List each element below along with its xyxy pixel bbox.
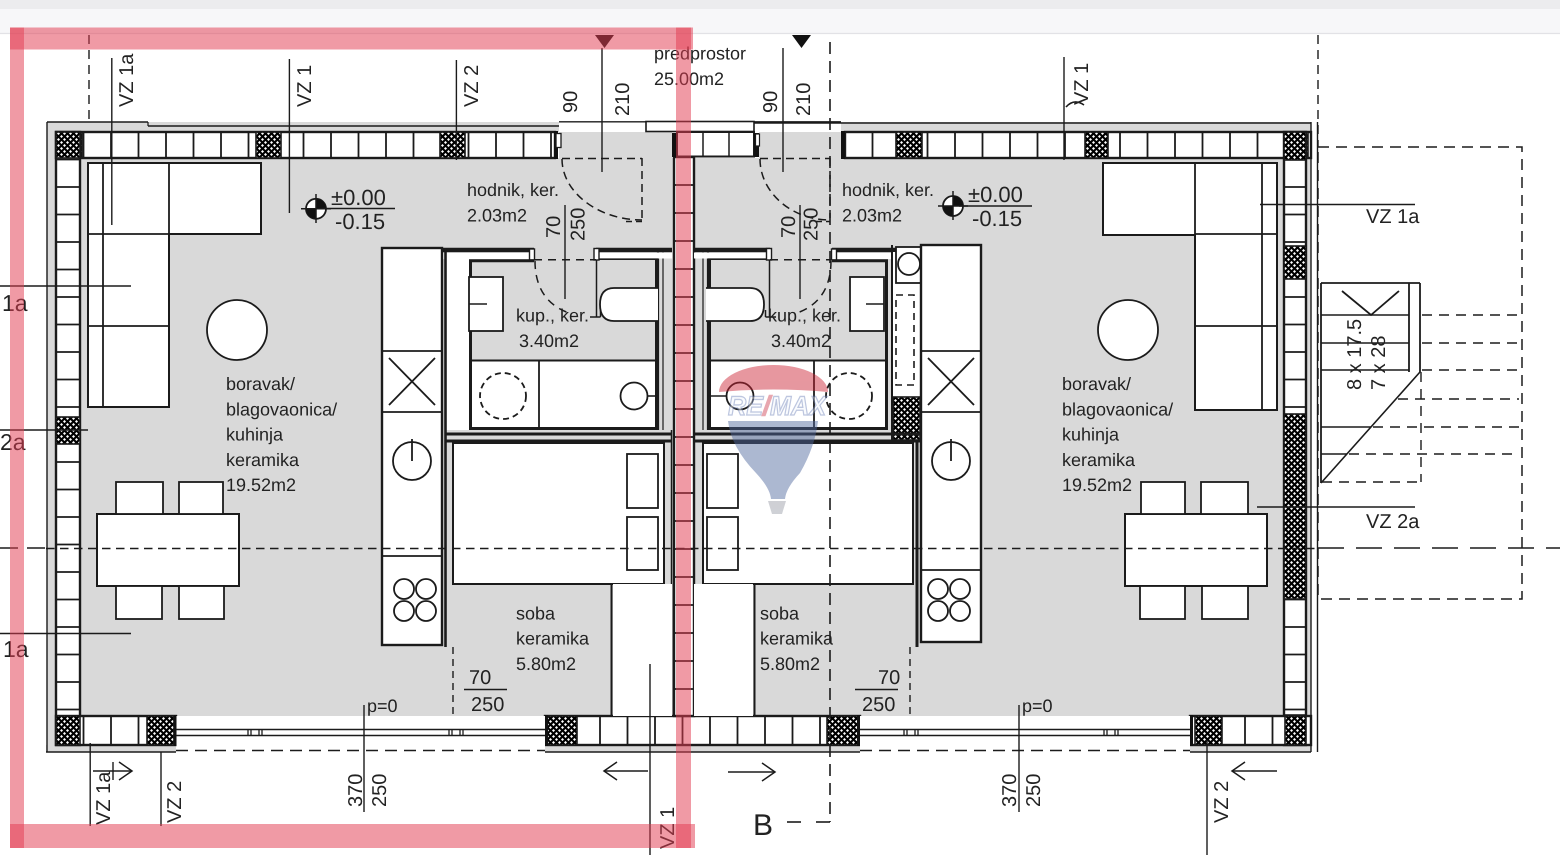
svg-text:-0.15: -0.15	[335, 209, 385, 234]
svg-text:2.03m2: 2.03m2	[842, 205, 902, 225]
svg-text:±0.00: ±0.00	[331, 185, 386, 210]
svg-text:370: 370	[999, 774, 1021, 807]
svg-text:250: 250	[801, 208, 823, 241]
svg-text:kuhinja: kuhinja	[1062, 425, 1120, 445]
svg-text:210: 210	[793, 83, 815, 116]
svg-text:keramika: keramika	[516, 629, 590, 649]
svg-text:VZ 1a: VZ 1a	[93, 771, 115, 825]
svg-text:VZ 1: VZ 1	[294, 65, 316, 107]
svg-text:VZ 2: VZ 2	[461, 65, 483, 107]
svg-text:kup., ker.: kup., ker.	[516, 306, 589, 326]
svg-text:70: 70	[543, 216, 565, 238]
svg-text:boravak/: boravak/	[226, 374, 295, 394]
svg-text:RE/MAX: RE/MAX	[728, 391, 828, 421]
svg-text:250: 250	[471, 694, 504, 716]
svg-text:keramika: keramika	[760, 629, 834, 649]
svg-text:±0.00: ±0.00	[968, 182, 1023, 207]
svg-text:hodnik, ker.: hodnik, ker.	[467, 180, 559, 200]
svg-text:blagovaonica/: blagovaonica/	[226, 399, 337, 419]
svg-text:250: 250	[568, 208, 590, 241]
svg-text:70: 70	[778, 216, 800, 238]
svg-text:VZ 1a: VZ 1a	[116, 53, 138, 107]
svg-text:soba: soba	[760, 604, 800, 624]
svg-text:19.52m2: 19.52m2	[226, 475, 296, 495]
svg-text:2.03m2: 2.03m2	[467, 205, 527, 225]
svg-text:kuhinja: kuhinja	[226, 425, 284, 445]
svg-text:p=0: p=0	[1022, 696, 1053, 716]
svg-text:70: 70	[469, 667, 491, 689]
svg-text:5.80m2: 5.80m2	[760, 654, 820, 674]
svg-text:-0.15: -0.15	[972, 206, 1022, 231]
svg-text:p=0: p=0	[367, 696, 398, 716]
svg-text:19.52m2: 19.52m2	[1062, 475, 1132, 495]
svg-text:90: 90	[760, 91, 782, 113]
svg-text:7 x 28: 7 x 28	[1368, 336, 1390, 390]
svg-text:keramika: keramika	[1062, 450, 1136, 470]
svg-text:90: 90	[560, 91, 582, 113]
svg-text:B: B	[753, 809, 773, 842]
svg-text:hodnik, ker.: hodnik, ker.	[842, 180, 934, 200]
svg-text:soba: soba	[516, 604, 556, 624]
svg-text:250: 250	[862, 694, 895, 716]
svg-text:boravak/: boravak/	[1062, 374, 1131, 394]
svg-text:3.40m2: 3.40m2	[771, 331, 831, 351]
svg-text:250: 250	[369, 774, 391, 807]
svg-text:70: 70	[878, 667, 900, 689]
svg-text:blagovaonica/: blagovaonica/	[1062, 399, 1173, 419]
svg-text:VZ 1: VZ 1	[1071, 63, 1093, 105]
svg-text:kup., ker.: kup., ker.	[768, 306, 841, 326]
svg-text:keramika: keramika	[226, 450, 300, 470]
svg-text:250: 250	[1023, 774, 1045, 807]
svg-text:VZ 1a: VZ 1a	[1366, 206, 1420, 228]
svg-text:VZ 2: VZ 2	[164, 781, 186, 823]
svg-text:3.40m2: 3.40m2	[519, 331, 579, 351]
svg-text:8 x 17.5: 8 x 17.5	[1344, 319, 1366, 390]
svg-text:210: 210	[612, 83, 634, 116]
svg-text:5.80m2: 5.80m2	[516, 654, 576, 674]
svg-text:VZ 2: VZ 2	[1211, 781, 1233, 823]
svg-text:VZ 2a: VZ 2a	[1366, 511, 1420, 533]
svg-text:370: 370	[345, 774, 367, 807]
